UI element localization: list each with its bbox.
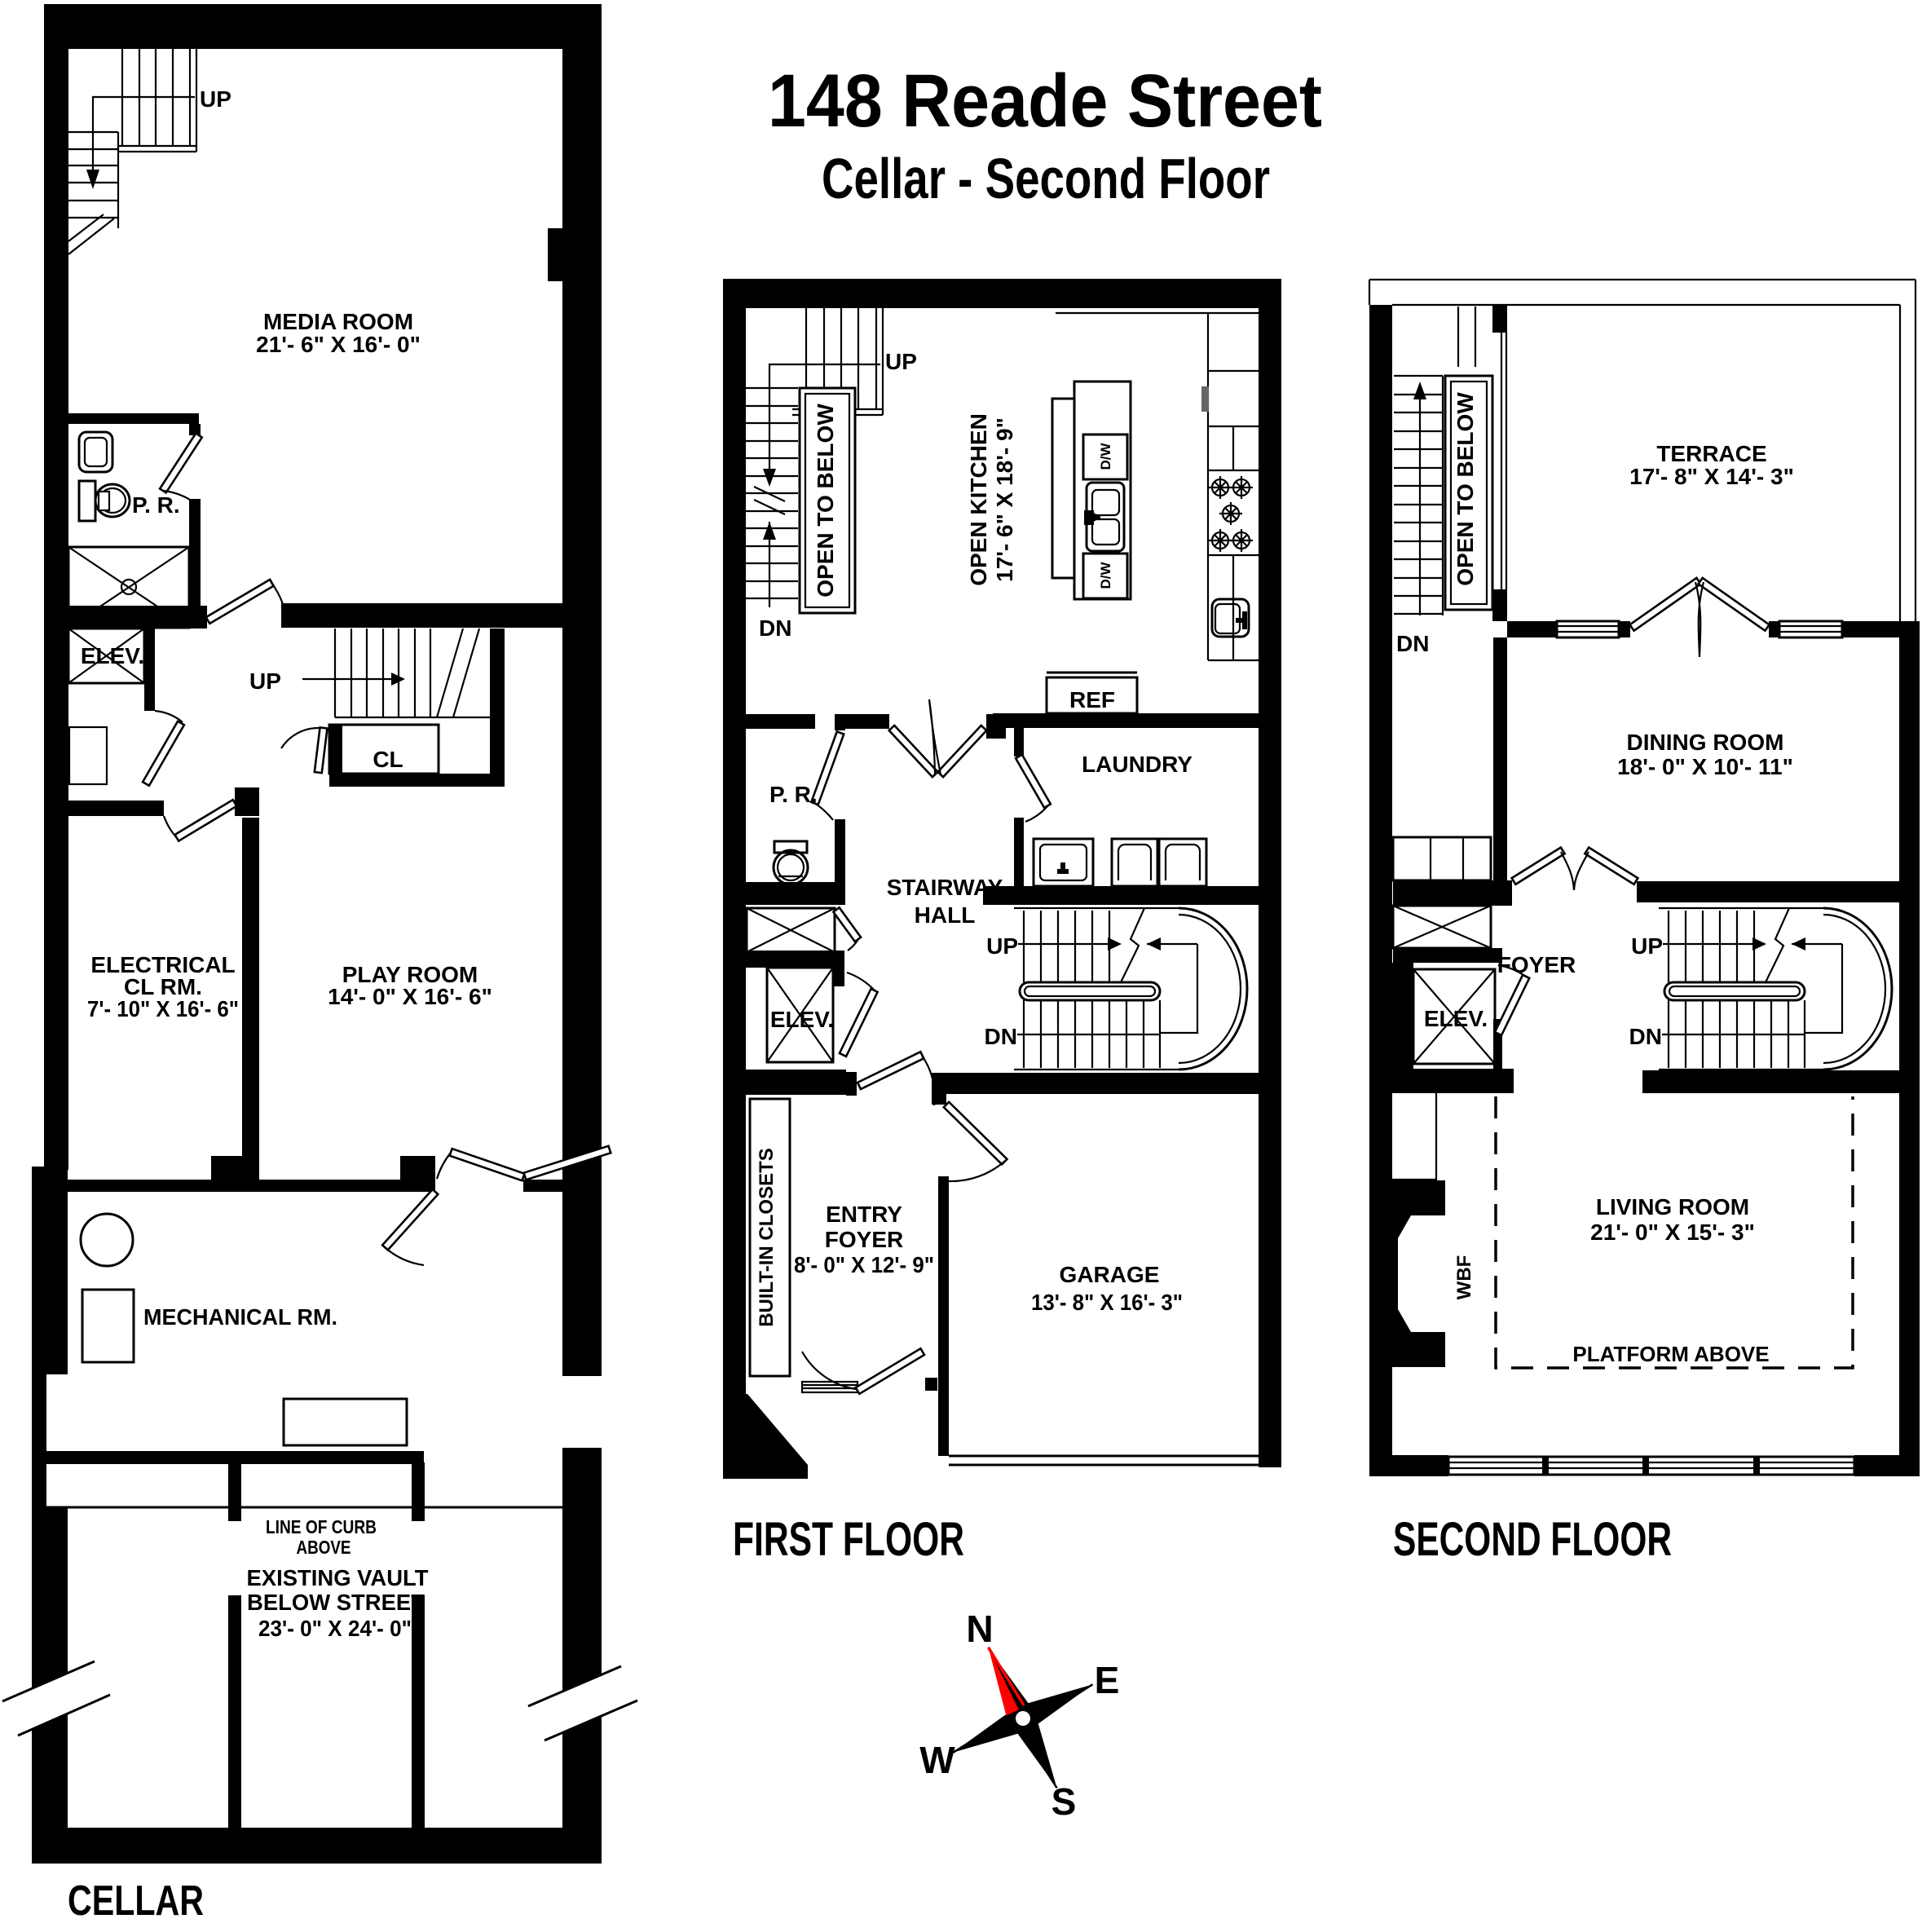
svg-text:PLATFORM ABOVE: PLATFORM ABOVE — [1572, 1342, 1769, 1366]
svg-text:21'- 6" X 16'- 0": 21'- 6" X 16'- 0" — [256, 332, 421, 357]
svg-text:FOYER: FOYER — [825, 1227, 903, 1252]
svg-text:UP: UP — [200, 86, 231, 112]
svg-text:LIVING ROOM: LIVING ROOM — [1596, 1194, 1749, 1220]
svg-text:N: N — [966, 1608, 993, 1650]
svg-text:ABOVE: ABOVE — [297, 1537, 351, 1558]
svg-text:GARAGE: GARAGE — [1060, 1262, 1160, 1287]
svg-text:Cellar - Second Floor: Cellar - Second Floor — [822, 147, 1270, 210]
svg-text:W: W — [919, 1739, 955, 1781]
svg-text:ELEV.: ELEV. — [81, 643, 144, 668]
svg-text:LAUNDRY: LAUNDRY — [1082, 752, 1193, 777]
svg-text:FIRST FLOOR: FIRST FLOOR — [733, 1513, 964, 1566]
svg-text:UP: UP — [885, 349, 917, 374]
svg-text:ELEV.: ELEV. — [770, 1007, 834, 1032]
svg-text:LINE OF CURB: LINE OF CURB — [266, 1516, 377, 1537]
svg-text:8'- 0" X 12'- 9": 8'- 0" X 12'- 9" — [794, 1252, 934, 1277]
svg-text:BELOW STREET: BELOW STREET — [247, 1590, 425, 1615]
svg-text:TERRACE: TERRACE — [1656, 441, 1766, 466]
svg-text:MEDIA ROOM: MEDIA ROOM — [263, 309, 413, 334]
svg-text:148 Reade Street: 148 Reade Street — [768, 60, 1322, 143]
svg-text:DN: DN — [759, 615, 791, 641]
svg-text:CL: CL — [373, 747, 403, 772]
svg-text:HALL: HALL — [915, 902, 976, 928]
svg-text:ENTRY: ENTRY — [826, 1202, 902, 1227]
svg-text:18'- 0" X 10'- 11": 18'- 0" X 10'- 11" — [1617, 754, 1793, 779]
svg-text:SECOND FLOOR: SECOND FLOOR — [1393, 1513, 1672, 1566]
svg-text:BUILT-IN CLOSETS: BUILT-IN CLOSETS — [756, 1148, 778, 1327]
svg-text:7'- 10" X 16'- 6": 7'- 10" X 16'- 6" — [87, 996, 239, 1021]
svg-text:E: E — [1095, 1659, 1120, 1701]
svg-text:ELEV.: ELEV. — [1424, 1006, 1488, 1031]
svg-text:FOYER: FOYER — [1497, 952, 1576, 977]
svg-text:UP: UP — [1631, 933, 1663, 959]
svg-text:UP: UP — [986, 933, 1018, 959]
svg-text:UP: UP — [249, 668, 281, 694]
svg-text:CELLAR: CELLAR — [68, 1877, 204, 1925]
svg-text:DN: DN — [1396, 631, 1429, 656]
svg-text:DN: DN — [985, 1024, 1017, 1049]
svg-text:OPEN TO BELOW: OPEN TO BELOW — [1453, 392, 1478, 586]
svg-text:D/W: D/W — [1098, 562, 1113, 589]
svg-text:P. R.: P. R. — [132, 492, 180, 518]
svg-text:MECHANICAL RM.: MECHANICAL RM. — [143, 1304, 337, 1330]
svg-text:13'- 8" X 16'- 3": 13'- 8" X 16'- 3" — [1031, 1290, 1183, 1315]
svg-text:P. R.: P. R. — [769, 782, 818, 807]
svg-text:S: S — [1051, 1780, 1077, 1823]
svg-text:OPEN KITCHEN: OPEN KITCHEN — [966, 413, 991, 586]
svg-text:WBF: WBF — [1453, 1255, 1475, 1300]
svg-text:14'- 0" X 16'- 6": 14'- 0" X 16'- 6" — [328, 984, 492, 1009]
svg-text:17'- 8" X 14'- 3": 17'- 8" X 14'- 3" — [1629, 464, 1794, 489]
svg-text:DN: DN — [1629, 1024, 1662, 1049]
svg-text:23'- 0" X 24'- 0": 23'- 0" X 24'- 0" — [258, 1616, 412, 1641]
svg-text:OPEN TO BELOW: OPEN TO BELOW — [813, 404, 838, 598]
svg-text:STAIRWAY: STAIRWAY — [887, 875, 1003, 900]
svg-text:21'- 0" X 15'- 3": 21'- 0" X 15'- 3" — [1590, 1220, 1755, 1245]
svg-text:DINING ROOM: DINING ROOM — [1627, 730, 1784, 755]
svg-text:EXISTING VAULT: EXISTING VAULT — [247, 1565, 429, 1590]
svg-text:D/W: D/W — [1098, 443, 1113, 470]
svg-text:17'- 6" X 18'- 9": 17'- 6" X 18'- 9" — [992, 417, 1017, 582]
svg-text:REF: REF — [1069, 687, 1115, 712]
